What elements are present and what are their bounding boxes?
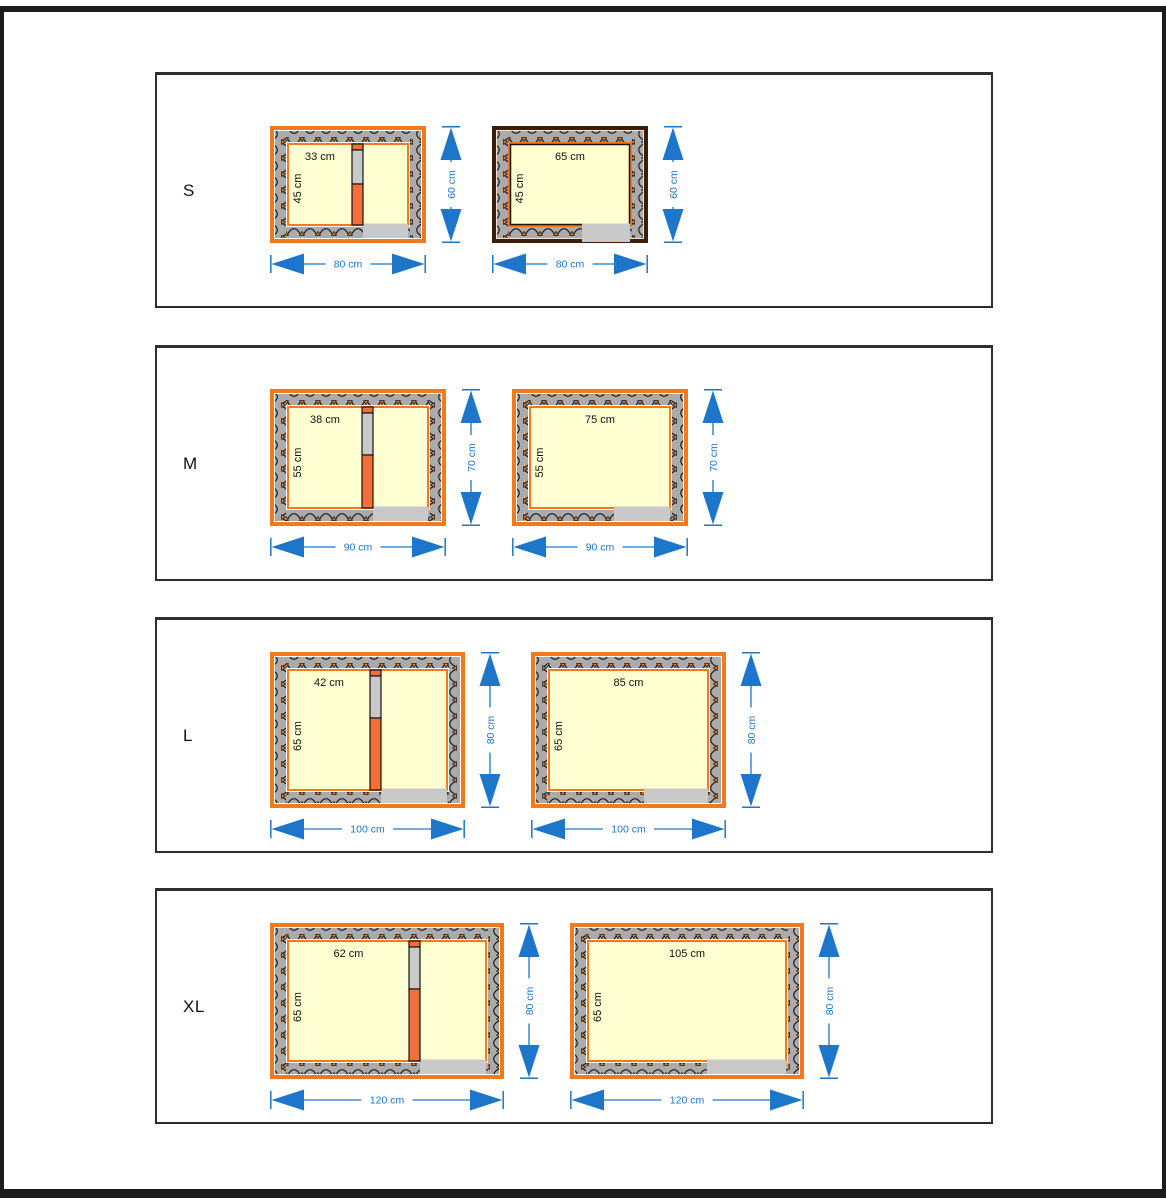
arrowhead-down-icon [480, 774, 501, 807]
entrance-opening [644, 788, 708, 803]
interior-floor [288, 407, 428, 508]
arrowhead-down-icon [703, 492, 724, 525]
wall-hatch-right [710, 657, 721, 803]
size-label: S [183, 181, 195, 201]
wall-hatch-left [275, 394, 286, 521]
arrowhead-right-icon [654, 537, 687, 558]
width-dimension: 90 cm [513, 537, 687, 558]
width-dimension: 100 cm [532, 818, 725, 839]
width-dimension: 100 cm [271, 818, 464, 839]
diagram-area: 38 cm55 cm90 cm70 cm75 cm55 cm90 cm70 cm [270, 348, 734, 579]
interior-width-label: 62 cm [334, 948, 364, 960]
height-dimension: 80 cm [480, 652, 501, 806]
divider-passage [409, 947, 420, 989]
interior-width-label: 38 cm [310, 414, 340, 426]
wall-hatch-top [275, 131, 421, 142]
divider-cap [370, 670, 381, 676]
floorplan-open: 105 cm65 cm120 cm80 cm [570, 923, 850, 1121]
size-row-m: M 38 cm55 cm90 cm70 cm75 cm55 cm90 cm70 … [155, 345, 993, 581]
divider-cap [352, 144, 363, 150]
width-dimension: 90 cm [271, 537, 445, 558]
outer-height-value: 70 cm [708, 443, 720, 472]
arrowhead-up-icon [703, 391, 724, 424]
height-dimension: 70 cm [461, 390, 482, 525]
outer-height-value: 80 cm [824, 986, 836, 1015]
page: S 33 cm45 cm80 cm60 cm65 cm45 cm80 cm60 … [0, 0, 1166, 1200]
wall-hatch-top [497, 131, 643, 142]
interior-height-label: 55 cm [292, 448, 304, 478]
divider-wall [370, 718, 381, 790]
wall-hatch-right [430, 394, 441, 521]
wall-hatch-left [575, 928, 586, 1074]
wall-hatch-right [449, 657, 460, 803]
arrowhead-left-icon [514, 537, 547, 558]
outer-width-value: 120 cm [370, 1094, 405, 1106]
interior-height-label: 65 cm [292, 721, 304, 751]
wall-hatch-left [275, 928, 286, 1074]
outer-height-value: 80 cm [746, 715, 758, 744]
divider-wall [409, 989, 420, 1061]
arrowhead-left-icon [272, 818, 305, 839]
wall-hatch-right [488, 928, 499, 1074]
wall-hatch-right [632, 131, 643, 238]
interior-width-label: 105 cm [669, 948, 705, 960]
divider-passage [352, 150, 363, 184]
arrowhead-right-icon [692, 818, 725, 839]
interior-width-label: 65 cm [555, 151, 585, 163]
diagram-area: 62 cm65 cm120 cm80 cm105 cm65 cm120 cm80… [270, 891, 850, 1122]
outer-height-value: 80 cm [485, 715, 497, 744]
divider-passage [362, 413, 373, 455]
wall-hatch-right [672, 394, 683, 521]
arrowhead-right-icon [392, 254, 425, 275]
divider-cap [409, 941, 420, 947]
interior-width-label: 85 cm [614, 677, 644, 689]
divider-cap [362, 407, 373, 413]
floorplan-open: 75 cm55 cm90 cm70 cm [512, 389, 734, 568]
size-label: M [183, 454, 198, 474]
floorplan-divided: 38 cm55 cm90 cm70 cm [270, 389, 492, 568]
arrowhead-up-icon [519, 924, 540, 957]
arrowhead-down-icon [663, 209, 684, 242]
arrowhead-left-icon [572, 1089, 605, 1110]
arrowhead-down-icon [441, 209, 462, 242]
height-dimension: 80 cm [819, 923, 840, 1077]
entrance-opening [614, 507, 670, 522]
size-row-xl: XL 62 cm65 cm120 cm80 cm105 cm65 cm120 c… [155, 888, 993, 1124]
floorplan-divided: 42 cm65 cm100 cm80 cm [270, 652, 511, 850]
outer-width-value: 120 cm [670, 1094, 705, 1106]
arrowhead-up-icon [441, 128, 462, 161]
arrowhead-left-icon [272, 1089, 305, 1110]
size-label: L [183, 726, 193, 746]
outer-height-value: 70 cm [466, 443, 478, 472]
wall-hatch-left [275, 131, 286, 238]
height-dimension: 60 cm [663, 127, 684, 242]
height-dimension: 80 cm [741, 652, 762, 806]
diagram-area: 42 cm65 cm100 cm80 cm85 cm65 cm100 cm80 … [270, 620, 772, 851]
outer-height-value: 80 cm [524, 986, 536, 1015]
wall-hatch-left [517, 394, 528, 521]
divider-wall [352, 184, 363, 225]
outer-width-value: 90 cm [344, 542, 373, 554]
height-dimension: 80 cm [519, 923, 540, 1077]
arrowhead-up-icon [461, 391, 482, 424]
interior-height-label: 65 cm [292, 992, 304, 1022]
arrowhead-right-icon [412, 537, 445, 558]
wall-hatch-left [536, 657, 547, 803]
wall-hatch-left [275, 657, 286, 803]
arrowhead-left-icon [494, 254, 527, 275]
floorplan-divided: 33 cm45 cm80 cm60 cm [270, 126, 472, 285]
interior-floor [288, 941, 486, 1061]
entrance-opening [420, 1059, 486, 1074]
arrowhead-right-icon [470, 1089, 503, 1110]
entrance-opening [381, 788, 447, 803]
wall-hatch-right [788, 928, 799, 1074]
arrowhead-left-icon [272, 537, 305, 558]
divider-wall [362, 455, 373, 508]
size-row-s: S 33 cm45 cm80 cm60 cm65 cm45 cm80 cm60 … [155, 72, 993, 308]
arrowhead-up-icon [819, 924, 840, 957]
arrowhead-down-icon [741, 774, 762, 807]
interior-height-label: 45 cm [292, 174, 304, 204]
wall-hatch-top [517, 394, 683, 405]
size-label: XL [183, 997, 205, 1017]
wall-hatch-left [497, 131, 508, 238]
entrance-opening [373, 507, 428, 522]
arrowhead-right-icon [770, 1089, 803, 1110]
diagram-area: 33 cm45 cm80 cm60 cm65 cm45 cm80 cm60 cm [270, 75, 694, 306]
width-dimension: 80 cm [493, 254, 647, 275]
arrowhead-down-icon [819, 1045, 840, 1078]
arrowhead-up-icon [663, 128, 684, 161]
interior-height-label: 65 cm [592, 992, 604, 1022]
outer-height-value: 60 cm [446, 170, 458, 199]
interior-height-label: 45 cm [514, 174, 526, 204]
arrowhead-right-icon [431, 818, 464, 839]
interior-floor [288, 670, 447, 790]
wall-hatch-top [275, 657, 460, 668]
wall-hatch-top [536, 657, 721, 668]
floorplan-open: 85 cm65 cm100 cm80 cm [531, 652, 772, 850]
outer-width-value: 80 cm [556, 259, 585, 271]
floorplan-open: 65 cm45 cm80 cm60 cm [492, 126, 694, 285]
arrowhead-right-icon [614, 254, 647, 275]
interior-width-label: 33 cm [305, 151, 335, 163]
outer-height-value: 60 cm [668, 170, 680, 199]
interior-height-label: 55 cm [534, 448, 546, 478]
interior-width-label: 75 cm [585, 414, 615, 426]
interior-height-label: 65 cm [553, 721, 565, 751]
wall-hatch-top [275, 928, 499, 939]
entrance-opening [363, 224, 408, 239]
entrance-opening [582, 224, 630, 243]
outer-width-value: 90 cm [586, 542, 615, 554]
width-dimension: 120 cm [271, 1089, 503, 1110]
divider-passage [370, 676, 381, 718]
wall-hatch-top [575, 928, 799, 939]
arrowhead-down-icon [519, 1045, 540, 1078]
outer-width-value: 100 cm [611, 823, 646, 835]
arrowhead-left-icon [272, 254, 305, 275]
height-dimension: 60 cm [441, 127, 462, 242]
size-row-l: L 42 cm65 cm100 cm80 cm85 cm65 cm100 cm8… [155, 617, 993, 853]
arrowhead-up-icon [480, 653, 501, 686]
floorplan-divided: 62 cm65 cm120 cm80 cm [270, 923, 550, 1121]
entrance-opening [707, 1059, 786, 1074]
wall-hatch-top [275, 394, 441, 405]
arrowhead-down-icon [461, 492, 482, 525]
arrowhead-up-icon [741, 653, 762, 686]
height-dimension: 70 cm [703, 390, 724, 525]
interior-width-label: 42 cm [314, 677, 344, 689]
width-dimension: 120 cm [571, 1089, 803, 1110]
width-dimension: 80 cm [271, 254, 425, 275]
arrowhead-left-icon [533, 818, 566, 839]
outer-width-value: 100 cm [350, 823, 385, 835]
wall-hatch-right [410, 131, 421, 238]
outer-width-value: 80 cm [334, 259, 363, 271]
